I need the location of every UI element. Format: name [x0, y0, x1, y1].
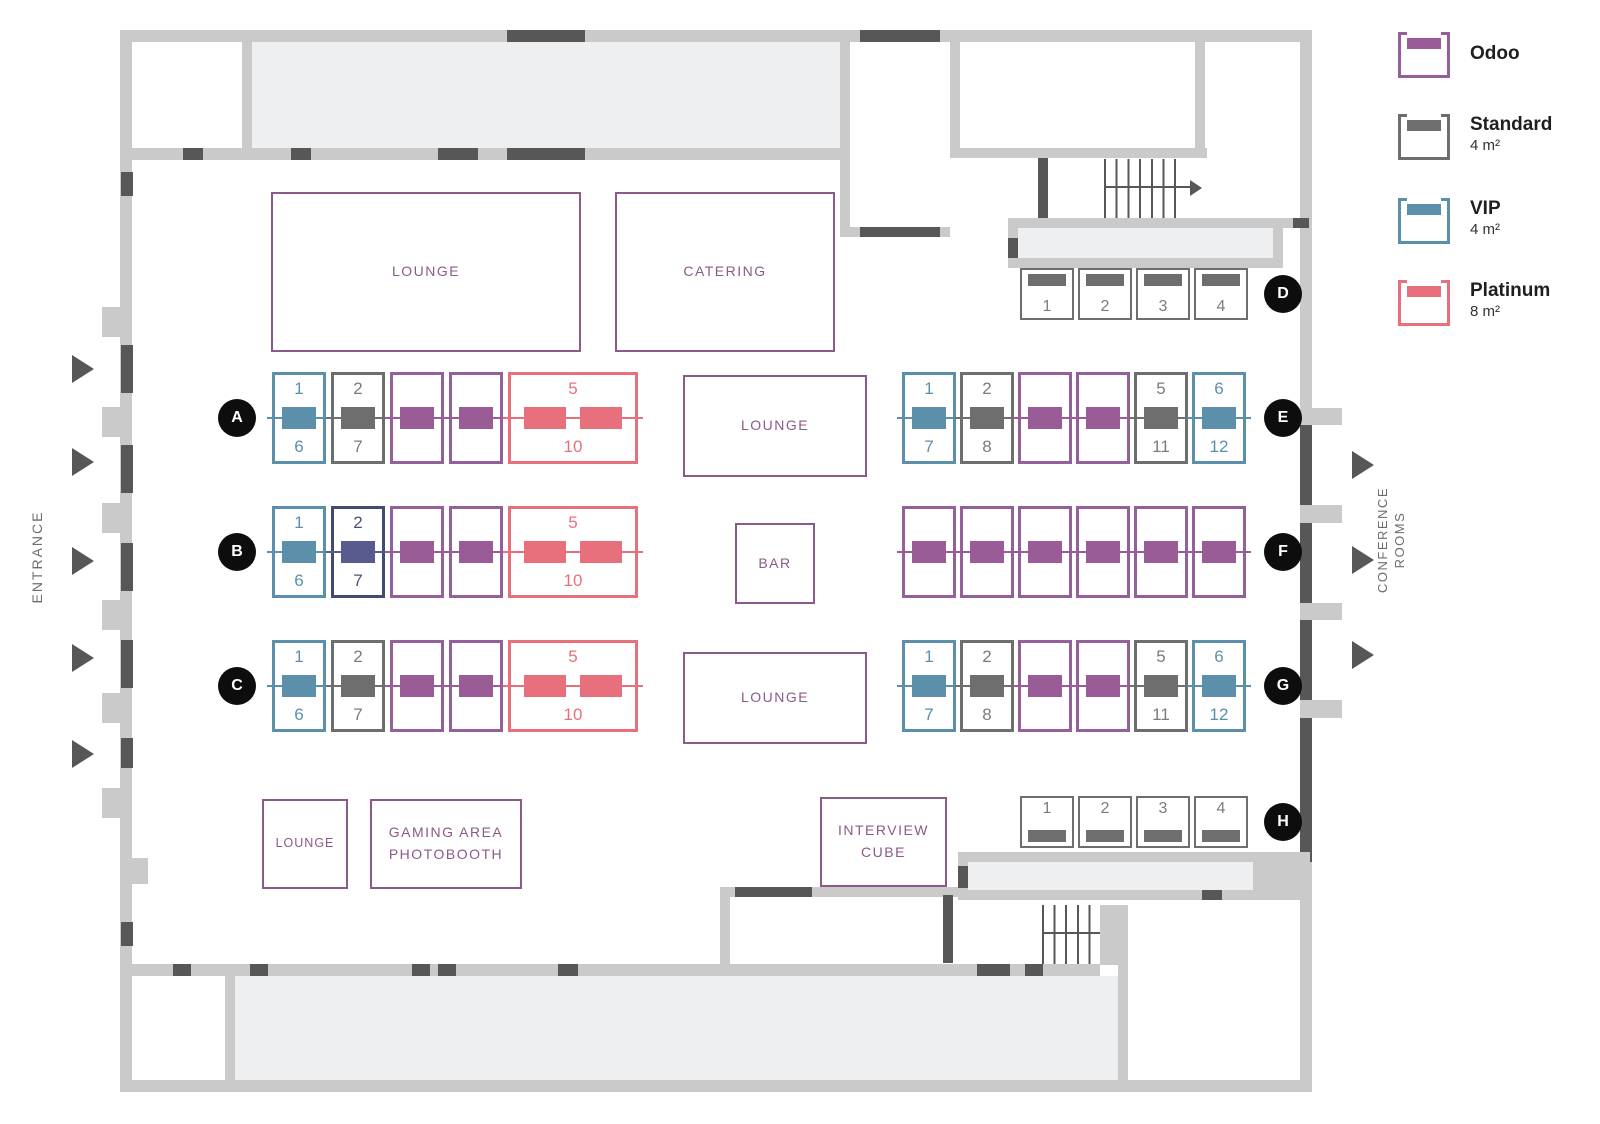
row-marker-D: D — [1264, 275, 1302, 313]
booth-row-B: 1627510 — [272, 506, 638, 598]
wall-segment — [102, 407, 132, 437]
wall-segment — [102, 600, 132, 630]
bar-area: BAR — [735, 523, 815, 604]
booth-number: 11 — [1137, 437, 1185, 457]
gaming-photobooth-area: GAMING AREA PHOTOBOOTH — [370, 799, 522, 889]
booth-odoo[interactable] — [1018, 372, 1072, 464]
wall-segment — [1300, 408, 1342, 425]
booth-standard[interactable]: 4 — [1194, 268, 1248, 320]
wall-segment — [102, 693, 132, 723]
floor-plan: ENTRANCE CONFERENCE ROOMS LOUNGE CATERIN… — [0, 0, 1600, 1124]
booth-platinum[interactable]: 510 — [508, 506, 638, 598]
booth-number: 2 — [963, 379, 1011, 399]
booth-standard[interactable]: 3 — [1136, 796, 1190, 848]
booth-standard[interactable]: 4 — [1194, 796, 1248, 848]
door-segment — [735, 887, 812, 897]
booth-table-icon — [1086, 274, 1124, 286]
booth-number: 7 — [905, 705, 953, 725]
booth-table-icon — [1086, 541, 1120, 563]
door-segment — [1293, 218, 1309, 228]
booth-table-icon — [1144, 407, 1178, 429]
booth-table-icon — [459, 407, 493, 429]
booth-table-icon — [400, 407, 434, 429]
booth-table-icon — [524, 675, 566, 697]
booth-table-icon — [400, 541, 434, 563]
booth-table-icon — [1202, 541, 1236, 563]
wall-segment — [950, 42, 960, 158]
legend-item-platinum: Platinum 8 m² — [1398, 280, 1598, 328]
door-segment — [507, 30, 585, 42]
booth-odoo[interactable] — [390, 372, 444, 464]
wall-segment — [120, 858, 148, 884]
wall-segment — [840, 42, 850, 237]
wall-segment — [1300, 603, 1342, 620]
stairs-top — [1104, 159, 1176, 219]
booth-table-icon — [341, 541, 375, 563]
booth-row-H: 1234 — [1020, 796, 1248, 848]
door-segment — [291, 148, 311, 160]
booth-table-icon — [1028, 274, 1066, 286]
vip-booth-icon — [1398, 198, 1450, 244]
booth-number: 1 — [1022, 298, 1072, 316]
wall-segment — [1118, 905, 1128, 1080]
door-segment — [1008, 238, 1018, 258]
stairs-top-arrow-icon — [1190, 180, 1202, 196]
booth-number: 12 — [1195, 705, 1243, 725]
conference-door-arrow-icon — [1352, 641, 1374, 669]
booth-standard[interactable]: 28 — [960, 640, 1014, 732]
booth-table-icon — [580, 675, 622, 697]
booth-platinum[interactable]: 510 — [508, 640, 638, 732]
booth-table-icon — [341, 675, 375, 697]
booth-odoo[interactable] — [1076, 640, 1130, 732]
door-segment — [121, 172, 133, 196]
booth-table-icon — [400, 675, 434, 697]
booth-number: 5 — [1137, 379, 1185, 399]
booth-table-icon — [1144, 274, 1182, 286]
stairs-bottom — [1042, 905, 1102, 965]
booth-row-E: 1728511612 — [902, 372, 1246, 464]
door-segment — [121, 738, 133, 768]
booth-standard[interactable]: 511 — [1134, 640, 1188, 732]
door-segment — [412, 964, 430, 976]
booth-number: 10 — [511, 437, 635, 457]
conference-door-arrow-icon — [1352, 451, 1374, 479]
wall-segment — [1008, 258, 1283, 268]
booth-number: 7 — [334, 437, 382, 457]
booth-number: 1 — [275, 513, 323, 533]
door-segment — [121, 640, 133, 688]
wall-segment — [1273, 228, 1283, 258]
row-marker-E: E — [1264, 399, 1302, 437]
legend-label: Odoo — [1470, 43, 1520, 64]
row-marker-F: F — [1264, 533, 1302, 571]
booth-number: 7 — [905, 437, 953, 457]
legend-item-standard: Standard 4 m² — [1398, 114, 1598, 162]
booth-table-icon — [524, 407, 566, 429]
booth-vip[interactable]: 17 — [902, 372, 956, 464]
booth-number: 1 — [1022, 800, 1072, 818]
wall-segment — [958, 852, 1310, 862]
booth-number: 5 — [1137, 647, 1185, 667]
booth-number: 10 — [511, 571, 635, 591]
booth-number: 6 — [1195, 379, 1243, 399]
booth-row-A: 1627510 — [272, 372, 638, 464]
booth-number: 6 — [275, 571, 323, 591]
booth-number: 2 — [334, 513, 382, 533]
booth-table-icon — [1028, 541, 1062, 563]
booth-table-icon — [1086, 675, 1120, 697]
booth-table-icon — [580, 541, 622, 563]
lounge-area: LOUNGE — [683, 375, 867, 477]
booth-table-icon — [970, 675, 1004, 697]
door-segment — [958, 866, 968, 888]
booth-odoo[interactable] — [1018, 640, 1072, 732]
door-segment — [1025, 964, 1043, 976]
door-segment — [558, 964, 578, 976]
booth-number: 6 — [1195, 647, 1243, 667]
legend-label: Platinum — [1470, 280, 1550, 301]
entrance-door-arrow-icon — [72, 644, 94, 672]
row-marker-C: C — [218, 667, 256, 705]
booth-row-F — [902, 506, 1246, 598]
booth-number: 2 — [963, 647, 1011, 667]
booth-table-icon — [1028, 830, 1066, 842]
booth-table-icon — [341, 407, 375, 429]
entrance-door-arrow-icon — [72, 547, 94, 575]
booth-number: 1 — [905, 379, 953, 399]
legend-size: 8 m² — [1470, 302, 1550, 322]
door-segment — [1202, 890, 1222, 900]
wall-segment — [120, 1080, 1312, 1092]
booth-number: 2 — [1080, 800, 1130, 818]
wall-segment — [102, 307, 132, 337]
door-segment — [860, 227, 940, 237]
booth-number: 2 — [334, 647, 382, 667]
conference-rooms-label: CONFERENCE ROOMS — [1374, 420, 1408, 660]
booth-table-icon — [970, 541, 1004, 563]
booth-odoo[interactable] — [449, 372, 503, 464]
booth-odoo[interactable] — [449, 506, 503, 598]
booth-table-icon — [1144, 541, 1178, 563]
booth-number: 5 — [511, 379, 635, 399]
booth-number: 7 — [334, 705, 382, 725]
wall-segment — [1100, 905, 1118, 965]
booth-table-icon — [580, 407, 622, 429]
booth-odoo[interactable] — [1076, 372, 1130, 464]
booth-number: 3 — [1138, 800, 1188, 818]
platinum-booth-icon — [1398, 280, 1450, 326]
booth-table-icon — [459, 675, 493, 697]
legend-size: 4 m² — [1470, 136, 1552, 156]
door-segment — [250, 964, 268, 976]
booth-table-icon — [282, 675, 316, 697]
door-segment — [507, 148, 585, 160]
booth-table-icon — [912, 675, 946, 697]
door-segment — [183, 148, 203, 160]
booth-number: 5 — [511, 513, 635, 533]
booth-odoo[interactable] — [1192, 506, 1246, 598]
booth-standard[interactable]: 1 — [1020, 796, 1074, 848]
booth-row-D: 1234 — [1020, 268, 1248, 320]
booth-vip[interactable]: 16 — [272, 640, 326, 732]
booth-table-icon — [970, 407, 1004, 429]
door-segment — [438, 964, 456, 976]
booth-number: 4 — [1196, 800, 1246, 818]
booth-number: 11 — [1137, 705, 1185, 725]
wall-segment — [1300, 505, 1342, 523]
door-segment — [121, 445, 133, 493]
booth-vip[interactable]: 612 — [1192, 640, 1246, 732]
row-marker-A: A — [218, 399, 256, 437]
booth-table-icon — [459, 541, 493, 563]
booth-number: 2 — [334, 379, 382, 399]
room-area — [968, 862, 1253, 890]
booth-standard[interactable]: 28 — [960, 372, 1014, 464]
wall-segment — [720, 887, 730, 975]
door-segment — [1038, 158, 1048, 218]
door-segment — [121, 922, 133, 946]
booth-standard[interactable]: 27 — [331, 640, 385, 732]
booth-vip[interactable]: 612 — [1192, 372, 1246, 464]
row-marker-H: H — [1264, 803, 1302, 841]
booth-platinum[interactable]: 510 — [508, 372, 638, 464]
entrance-door-arrow-icon — [72, 448, 94, 476]
booth-number: 6 — [275, 705, 323, 725]
wall-segment — [225, 976, 235, 1080]
booth-table-icon — [282, 541, 316, 563]
booth-table-icon — [1202, 830, 1240, 842]
booth-odoo[interactable] — [960, 506, 1014, 598]
booth-table-icon — [1144, 830, 1182, 842]
booth-number: 8 — [963, 437, 1011, 457]
door-segment — [860, 30, 940, 42]
wall-segment — [958, 890, 1310, 900]
booth-odoo[interactable] — [390, 506, 444, 598]
wall-segment — [120, 148, 850, 160]
booth-vip[interactable]: 16 — [272, 372, 326, 464]
booth-number: 7 — [334, 571, 382, 591]
booth-odoo[interactable] — [902, 506, 956, 598]
catering-area: CATERING — [615, 192, 835, 352]
wall-segment — [102, 503, 132, 533]
conference-door-arrow-icon — [1352, 546, 1374, 574]
booth-odoo[interactable] — [390, 640, 444, 732]
wall-segment — [1253, 862, 1300, 890]
booth-standard[interactable]: 511 — [1134, 372, 1188, 464]
row-marker-B: B — [218, 533, 256, 571]
booth-row-G: 1728511612 — [902, 640, 1246, 732]
booth-standard[interactable]: 27 — [331, 372, 385, 464]
booth-table-icon — [1028, 407, 1062, 429]
booth-table-icon — [912, 541, 946, 563]
door-segment — [1300, 523, 1312, 603]
wall-segment — [1008, 218, 1310, 228]
row-marker-G: G — [1264, 667, 1302, 705]
door-segment — [977, 964, 1010, 976]
odoo-booth-icon — [1398, 32, 1450, 78]
booth-odoo[interactable] — [449, 640, 503, 732]
entrance-door-arrow-icon — [72, 355, 94, 383]
legend-size: 4 m² — [1470, 220, 1501, 240]
booth-number: 8 — [963, 705, 1011, 725]
booth-number: 6 — [275, 437, 323, 457]
wall-segment — [1195, 42, 1205, 148]
door-segment — [1300, 718, 1312, 862]
entrance-label: ENTRANCE — [29, 457, 49, 657]
standard-booth-icon — [1398, 114, 1450, 160]
booth-odoo[interactable] — [1134, 506, 1188, 598]
booth-standard[interactable]: 2 — [1078, 268, 1132, 320]
lounge-area: LOUNGE — [262, 799, 348, 889]
booth-table-icon — [524, 541, 566, 563]
booth-odoo[interactable] — [1076, 506, 1130, 598]
booth-standard[interactable]: 2 — [1078, 796, 1132, 848]
wall-segment — [1300, 700, 1342, 718]
booth-vip[interactable]: 17 — [902, 640, 956, 732]
booth-table-icon — [1144, 675, 1178, 697]
booth-number: 2 — [1080, 298, 1130, 316]
door-segment — [438, 148, 478, 160]
wall-segment — [1104, 186, 1190, 188]
interview-cube-area: INTERVIEW CUBE — [820, 797, 947, 887]
booth-table-icon — [1086, 830, 1124, 842]
booth-table-icon — [1202, 274, 1240, 286]
door-segment — [1300, 425, 1312, 505]
booth-table-icon — [1202, 407, 1236, 429]
booth-number: 4 — [1196, 298, 1246, 316]
booth-number: 1 — [275, 379, 323, 399]
booth-number: 10 — [511, 705, 635, 725]
legend-item-vip: VIP 4 m² — [1398, 198, 1598, 246]
entrance-door-arrow-icon — [72, 740, 94, 768]
door-segment — [943, 895, 953, 963]
room-area — [1018, 228, 1273, 258]
legend-label: Standard — [1470, 114, 1552, 135]
door-segment — [121, 345, 133, 393]
booth-navy[interactable]: 27 — [331, 506, 385, 598]
booth-number: 12 — [1195, 437, 1243, 457]
booth-table-icon — [1202, 675, 1236, 697]
wall-segment — [242, 42, 252, 160]
wall-segment — [120, 30, 1312, 42]
booth-vip[interactable]: 16 — [272, 506, 326, 598]
legend-label: VIP — [1470, 198, 1501, 219]
door-segment — [121, 543, 133, 591]
booth-standard[interactable]: 1 — [1020, 268, 1074, 320]
booth-odoo[interactable] — [1018, 506, 1072, 598]
room-area — [252, 42, 840, 148]
booth-table-icon — [912, 407, 946, 429]
booth-table-icon — [282, 407, 316, 429]
booth-table-icon — [1086, 407, 1120, 429]
booth-number: 1 — [275, 647, 323, 667]
booth-number: 1 — [905, 647, 953, 667]
legend-item-odoo: Odoo — [1398, 32, 1598, 80]
wall-segment — [102, 788, 132, 818]
room-area — [235, 976, 1118, 1080]
lounge-area: LOUNGE — [683, 652, 867, 744]
booth-standard[interactable]: 3 — [1136, 268, 1190, 320]
booth-number: 3 — [1138, 298, 1188, 316]
wall-segment — [950, 148, 1207, 158]
booth-row-C: 1627510 — [272, 640, 638, 732]
booth-table-icon — [1028, 675, 1062, 697]
door-segment — [173, 964, 191, 976]
lounge-area: LOUNGE — [271, 192, 581, 352]
booth-number: 5 — [511, 647, 635, 667]
